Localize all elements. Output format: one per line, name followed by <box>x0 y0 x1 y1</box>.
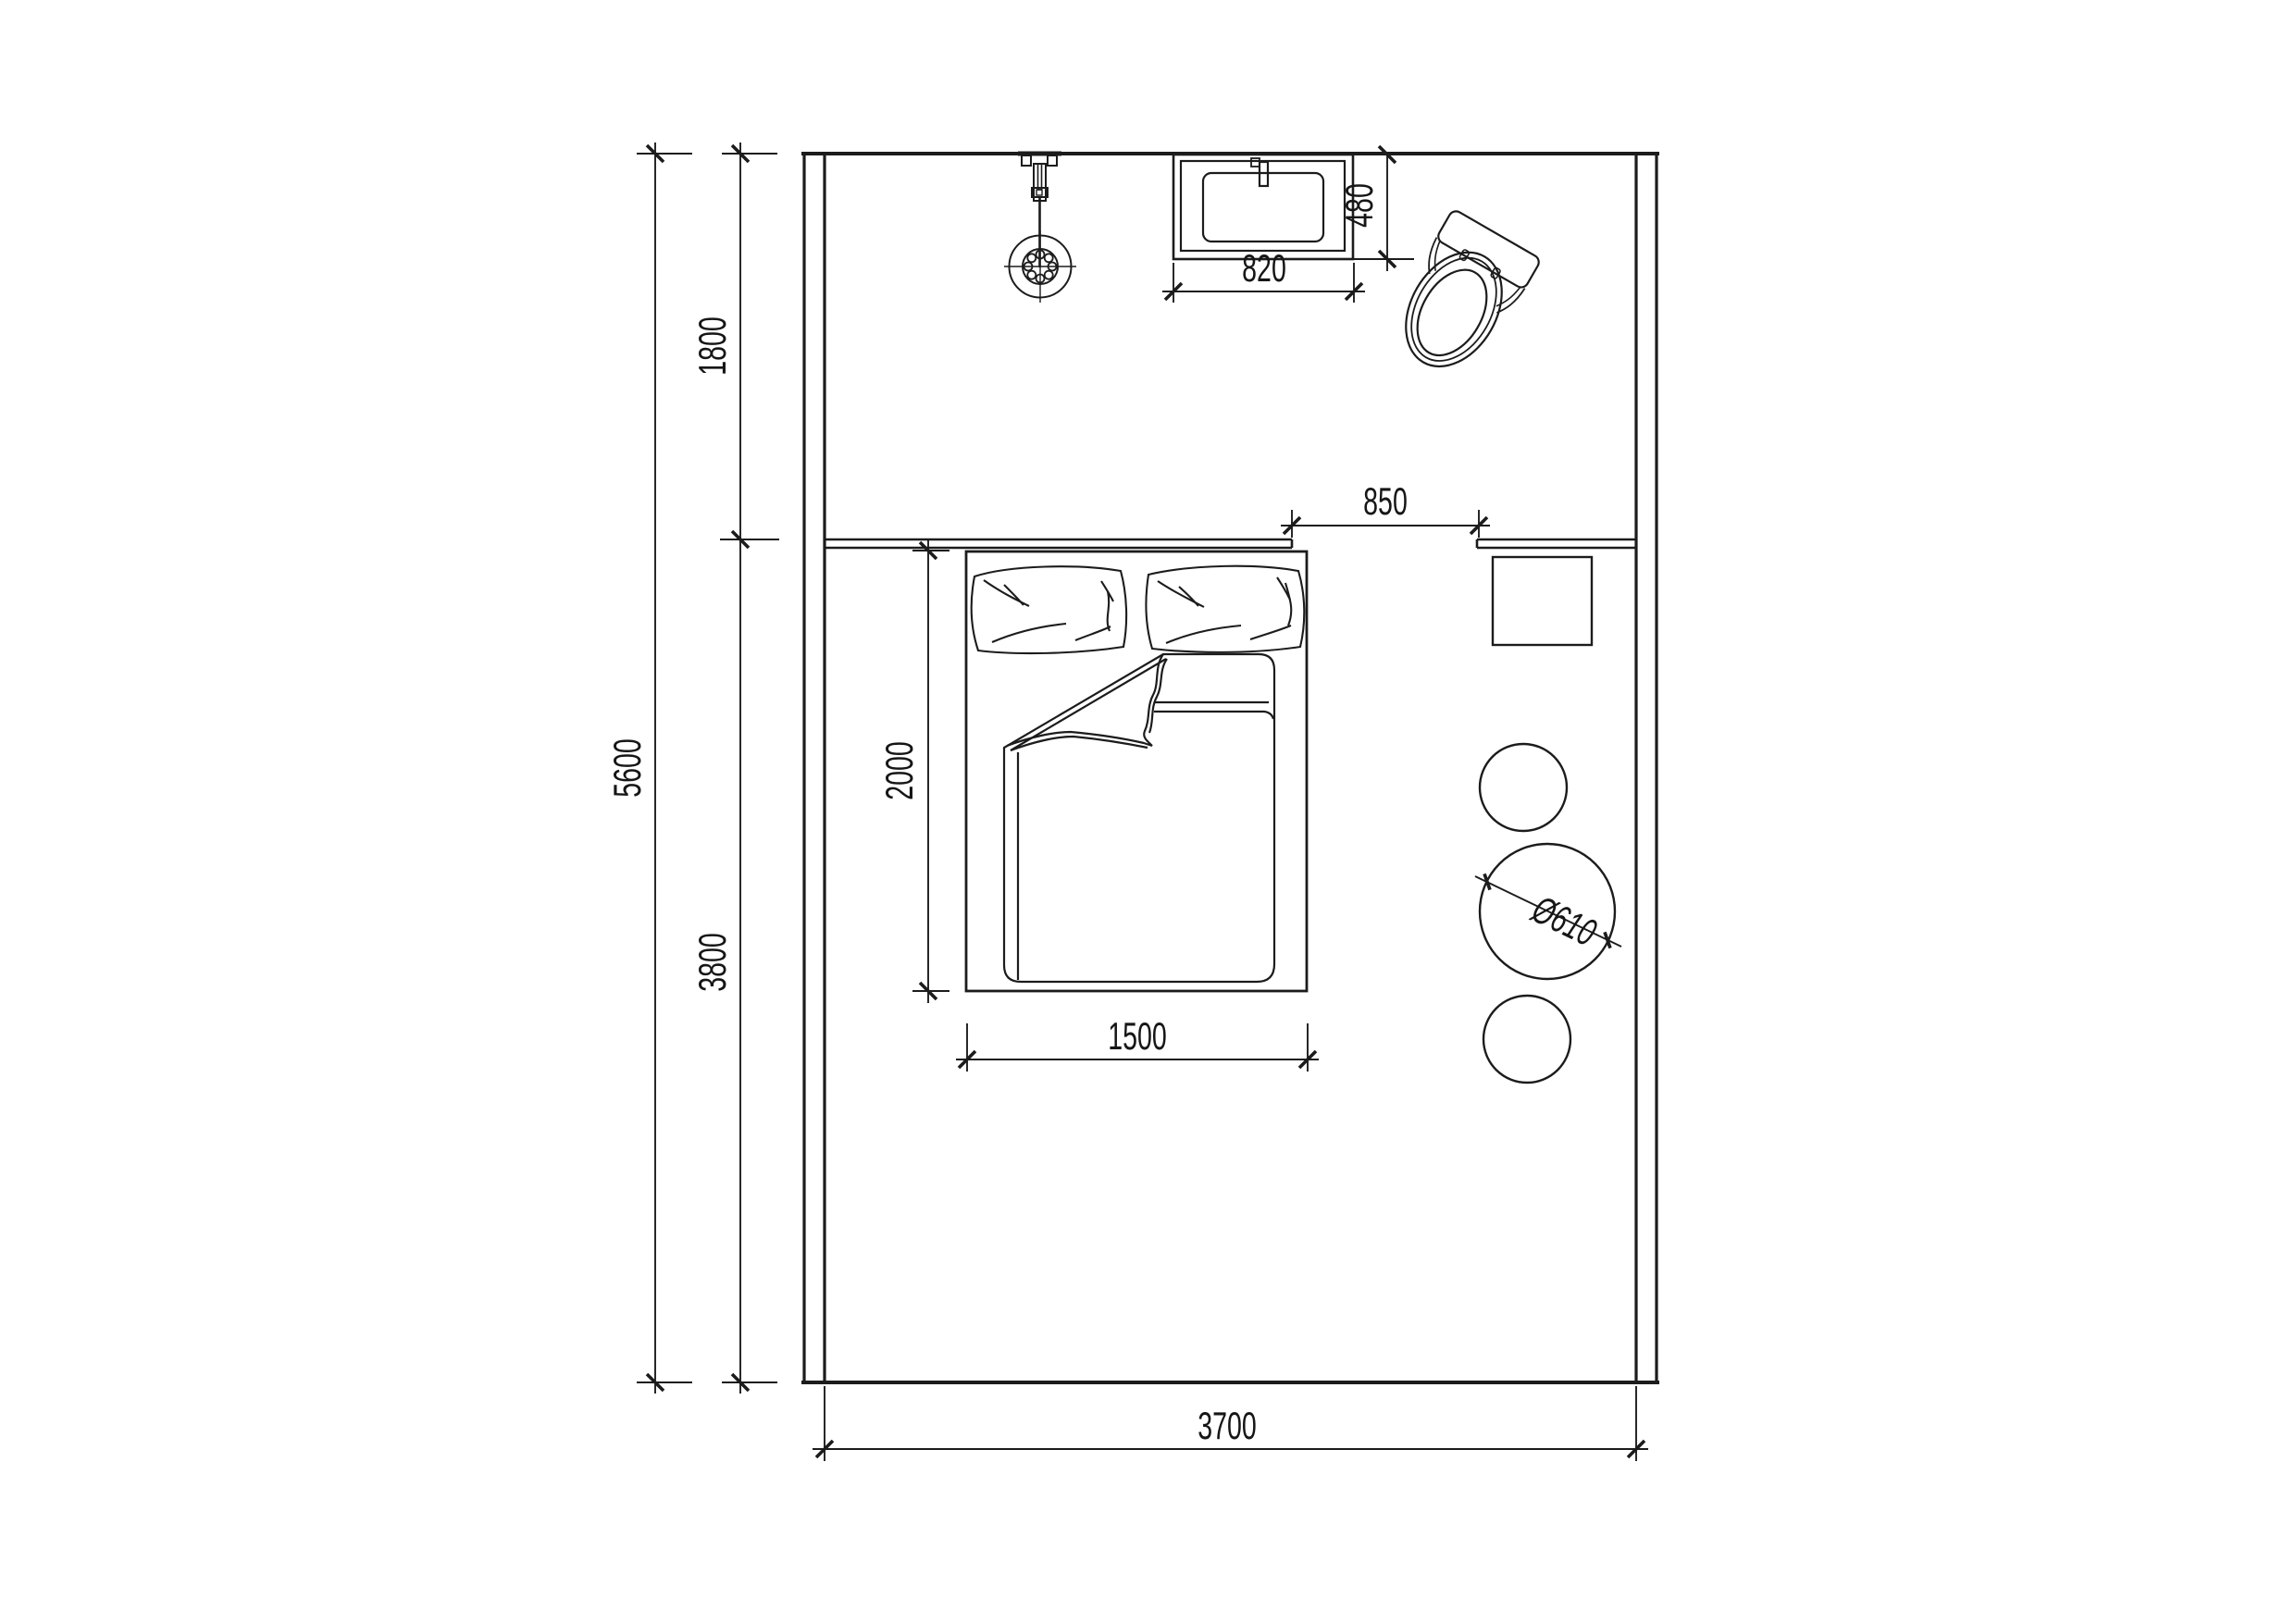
square-table-symbol <box>1493 557 1592 645</box>
label-610: Ø610 <box>1525 886 1604 955</box>
double-bed-symbol <box>966 551 1307 991</box>
toilet-tank <box>1435 208 1541 290</box>
stool-circle-top <box>1480 744 1567 831</box>
label-1500: 1500 <box>1108 1013 1167 1058</box>
label-2000: 2000 <box>876 741 921 800</box>
toilet-bowl-outer <box>1386 235 1521 383</box>
label-480: 480 <box>1336 183 1381 228</box>
shower-hook-left <box>1022 155 1031 166</box>
label-5600: 5600 <box>604 738 649 798</box>
label-3700: 3700 <box>1198 1403 1257 1447</box>
basin-counter <box>1173 155 1353 259</box>
stool-circle-bottom <box>1483 996 1570 1083</box>
label-3800: 3800 <box>689 933 734 992</box>
headboard-left <box>825 539 1292 548</box>
wash-basin-symbol <box>1173 155 1353 259</box>
headboard-right <box>1477 539 1636 548</box>
shower-hook-right <box>1048 155 1057 166</box>
basin-bowl <box>1203 173 1323 242</box>
label-820: 820 <box>1242 245 1286 290</box>
pillow-right <box>1146 566 1304 652</box>
shower-rail-inner <box>1038 164 1042 190</box>
label-1800: 1800 <box>689 316 734 376</box>
label-850: 850 <box>1363 478 1408 523</box>
floor-plan-sheet: 5600 1800 3800 2000 480 850 820 1500 370… <box>0 0 2296 1623</box>
duvet <box>1004 654 1274 982</box>
basin-faucet-handle <box>1251 158 1260 167</box>
shower-head-symbol <box>1004 154 1076 303</box>
toilet-symbol <box>1379 208 1541 388</box>
toilet-bowl-rim <box>1394 242 1513 376</box>
floor-plan-drawing: 5600 1800 3800 2000 480 850 820 1500 370… <box>0 0 2296 1623</box>
pillow-left <box>972 566 1126 653</box>
